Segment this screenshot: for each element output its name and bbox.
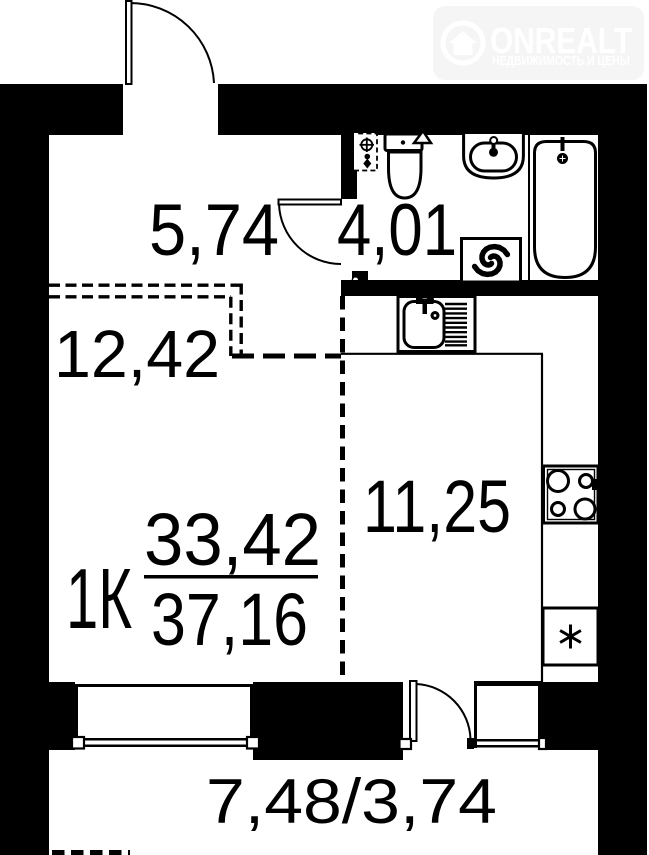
- svg-text:11,25: 11,25: [363, 465, 511, 548]
- svg-text:НЕДВИЖИМОСТЬ И ЦЕНЫ: НЕДВИЖИМОСТЬ И ЦЕНЫ: [492, 54, 630, 68]
- svg-text:5,74: 5,74: [149, 190, 279, 271]
- svg-text:12,42: 12,42: [54, 317, 220, 392]
- svg-text:33,42: 33,42: [144, 498, 321, 581]
- svg-text:1К: 1К: [66, 552, 132, 647]
- svg-text:37,16: 37,16: [151, 578, 308, 661]
- svg-text:4,01: 4,01: [337, 190, 457, 271]
- svg-text:7,48/3,74: 7,48/3,74: [206, 767, 497, 837]
